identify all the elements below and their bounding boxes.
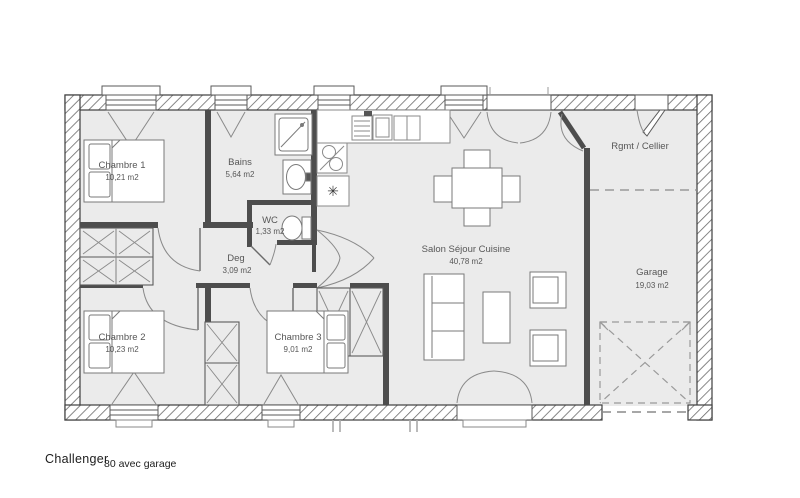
label-bains: Bains	[228, 157, 252, 168]
area-garage: 19,03 m2	[635, 281, 669, 290]
dining-table	[452, 168, 502, 208]
coffee-table	[483, 292, 510, 343]
wall-chambre2-closet	[205, 288, 211, 322]
wall-top	[65, 95, 712, 110]
wall-chambre3-north-right	[350, 283, 389, 288]
dining-chair-bottom	[464, 207, 490, 226]
closet-hall	[80, 228, 153, 285]
closet-between-chambre2-3	[205, 322, 239, 405]
wall-deg-salon-stub	[312, 245, 316, 272]
area-bains: 5,64 m2	[226, 170, 255, 179]
plan-subtitle: 80 avec garage	[104, 458, 176, 470]
label-wc: WC	[262, 215, 278, 226]
area-salon: 40,78 m2	[449, 257, 483, 266]
dining-chair-left	[434, 176, 453, 202]
wall-salon-garage	[584, 148, 590, 405]
washbasin	[283, 160, 311, 194]
bed-chambre1	[84, 140, 164, 202]
label-cellier: Rgmt / Cellier	[611, 141, 669, 152]
dining-chair-right	[501, 176, 520, 202]
kitchen-corner-sink	[317, 143, 347, 173]
kitchen-appliance	[394, 116, 420, 140]
wall-chambre1-bains	[205, 110, 211, 225]
area-wc: 1,33 m2	[256, 227, 285, 236]
wall-deg-north-left	[80, 222, 158, 228]
wall-wc-west	[247, 205, 252, 247]
label-garage: Garage	[636, 267, 668, 278]
floor-plan-drawing: ✳	[0, 0, 800, 498]
terrace-marks	[333, 420, 417, 432]
window-kitchen	[314, 86, 354, 110]
area-chambre3: 9,01 m2	[284, 345, 313, 354]
armchair-1	[530, 272, 566, 308]
label-chambre1: Chambre 1	[99, 160, 146, 171]
label-salon: Salon Séjour Cuisine	[422, 244, 511, 255]
wall-left	[65, 95, 80, 420]
area-chambre1: 10,21 m2	[105, 173, 139, 182]
dining-chair-top	[464, 150, 490, 169]
label-chambre2: Chambre 2	[99, 332, 146, 343]
wall-bottom-stub	[688, 405, 712, 420]
area-deg: 3,09 m2	[223, 266, 252, 275]
wall-deg-south-stub	[196, 283, 211, 288]
wall-chambre3-east	[383, 288, 389, 405]
wall-wc-north	[247, 200, 317, 205]
label-deg: Deg	[227, 253, 244, 264]
kitchen-hob: ✳	[317, 176, 349, 206]
wall-right	[697, 95, 712, 420]
toilet	[282, 216, 311, 240]
label-chambre3: Chambre 3	[275, 332, 322, 343]
wall-deg-north-right	[203, 222, 253, 228]
hob-star-symbol: ✳	[327, 183, 339, 199]
floor-plan-page: ✳	[0, 0, 800, 498]
armchair-2	[530, 330, 566, 366]
sofa	[424, 274, 464, 360]
plan-title: Challenger	[45, 452, 108, 466]
wall-chambre3-north-left	[211, 283, 250, 288]
area-chambre2: 10,23 m2	[105, 345, 139, 354]
wall-chambre3-north-mid	[293, 283, 317, 288]
shower	[275, 114, 312, 155]
